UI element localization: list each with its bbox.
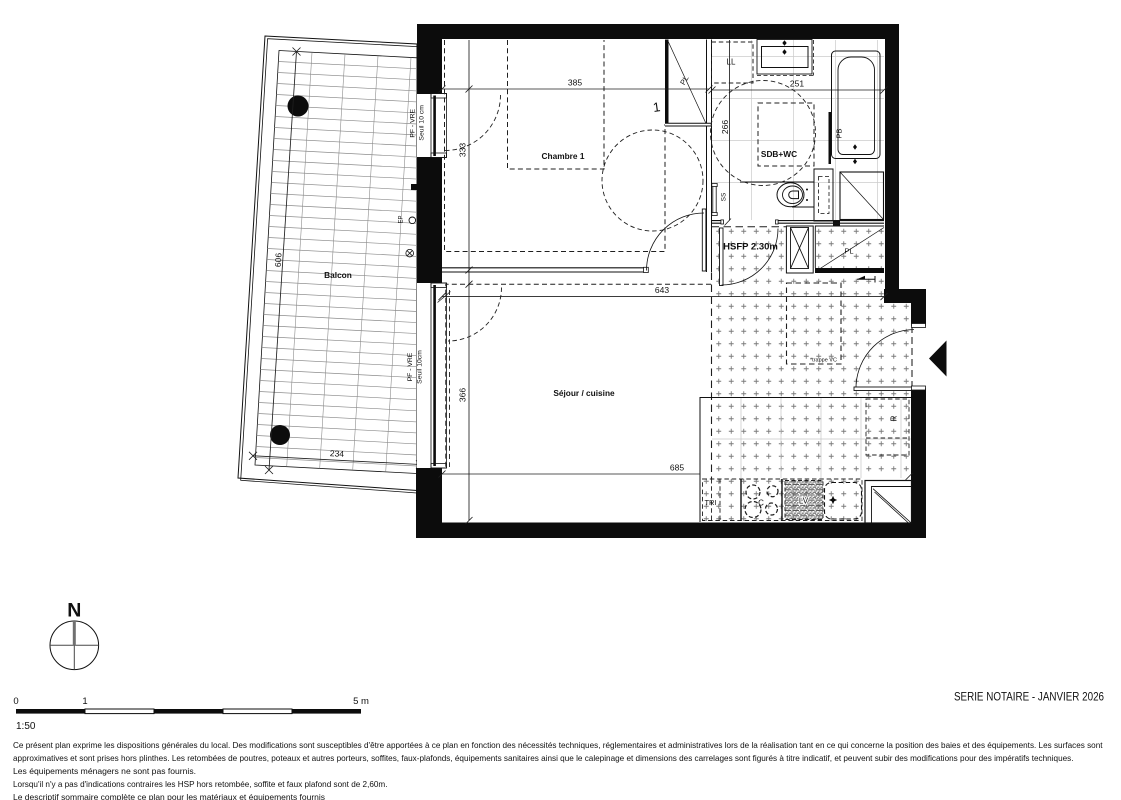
svg-text:5 m: 5 m [353, 696, 369, 707]
svg-text:C: C [758, 499, 764, 508]
svg-text:PF - VRE: PF - VRE [407, 352, 414, 381]
svg-text:SS: SS [721, 192, 728, 201]
svg-text:Balcon: Balcon [324, 270, 352, 280]
svg-text:PL: PL [678, 74, 690, 86]
svg-text:EP: EP [399, 215, 405, 223]
svg-text:SDB+WC: SDB+WC [761, 149, 797, 159]
svg-text:Ce présent plan exprime les di: Ce présent plan exprime les dispositions… [13, 740, 1103, 750]
svg-text:Lorsqu'il n'y a pas d'indicati: Lorsqu'il n'y a pas d'indications contra… [13, 779, 388, 789]
svg-text:1:50: 1:50 [16, 721, 36, 732]
svg-text:385: 385 [568, 78, 582, 88]
svg-text:TRI: TRI [704, 498, 716, 507]
svg-text:Le descriptif sommaire complèt: Le descriptif sommaire complète ce plan … [13, 792, 325, 800]
svg-text:PF - VRE: PF - VRE [409, 108, 416, 137]
svg-text:Seuil 10cm: Seuil 10cm [417, 350, 424, 384]
svg-text:366: 366 [458, 388, 468, 402]
svg-text:606: 606 [273, 252, 284, 267]
svg-text:234: 234 [330, 448, 345, 459]
svg-text:Chambre 1: Chambre 1 [542, 151, 585, 161]
svg-text:0: 0 [13, 696, 18, 707]
svg-text:LV: LV [799, 497, 809, 506]
svg-text:SERIE NOTAIRE - JANVIER 2026: SERIE NOTAIRE - JANVIER 2026 [954, 690, 1104, 704]
svg-text:PB: PB [835, 128, 844, 138]
svg-text:333: 333 [458, 143, 468, 157]
svg-text:643: 643 [655, 285, 669, 295]
svg-text:685: 685 [670, 463, 684, 473]
svg-text:R: R [890, 415, 899, 421]
svg-text:251: 251 [790, 79, 804, 89]
svg-text:*trappe VC: *trappe VC [810, 358, 837, 364]
svg-text:Séjour / cuisine: Séjour / cuisine [553, 388, 615, 398]
svg-text:approximatives et sont prises: approximatives et sont prises hors plint… [13, 753, 1074, 763]
svg-text:HSFP 2.30m: HSFP 2.30m [723, 242, 778, 253]
svg-text:LL: LL [727, 58, 736, 67]
svg-text:Les équipements ménagers ne so: Les équipements ménagers ne sont pas fou… [13, 766, 196, 776]
svg-text:PL: PL [844, 247, 853, 256]
svg-text:266: 266 [720, 120, 730, 134]
svg-text:1: 1 [82, 696, 87, 707]
svg-text:1: 1 [652, 99, 661, 115]
svg-text:N: N [67, 600, 81, 622]
svg-text:Seuil 10 cm: Seuil 10 cm [418, 105, 425, 141]
